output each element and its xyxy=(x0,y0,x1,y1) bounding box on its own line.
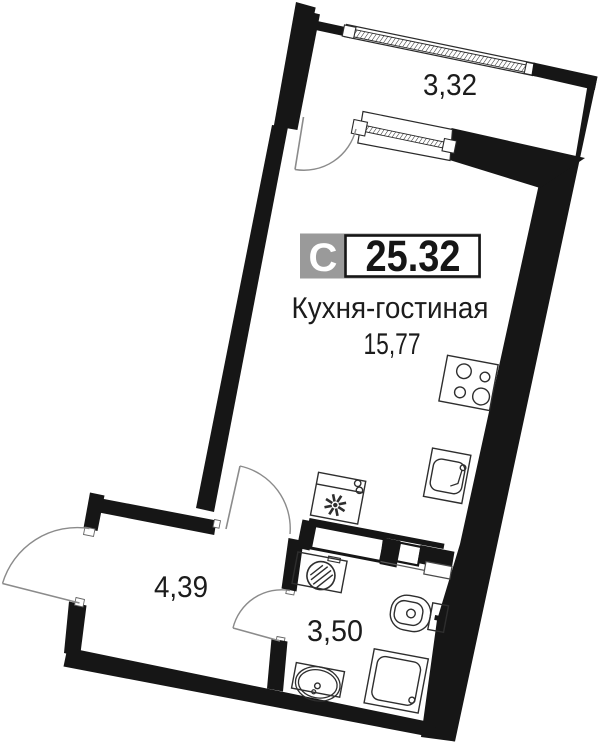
svg-text:С: С xyxy=(309,236,338,280)
svg-text:4,39: 4,39 xyxy=(154,571,208,604)
svg-text:25.32: 25.32 xyxy=(366,232,461,281)
svg-text:15,77: 15,77 xyxy=(364,328,421,361)
svg-text:3,50: 3,50 xyxy=(307,615,363,648)
svg-text:Кухня-гостиная: Кухня-гостиная xyxy=(292,292,489,325)
svg-text:3,32: 3,32 xyxy=(423,69,477,102)
